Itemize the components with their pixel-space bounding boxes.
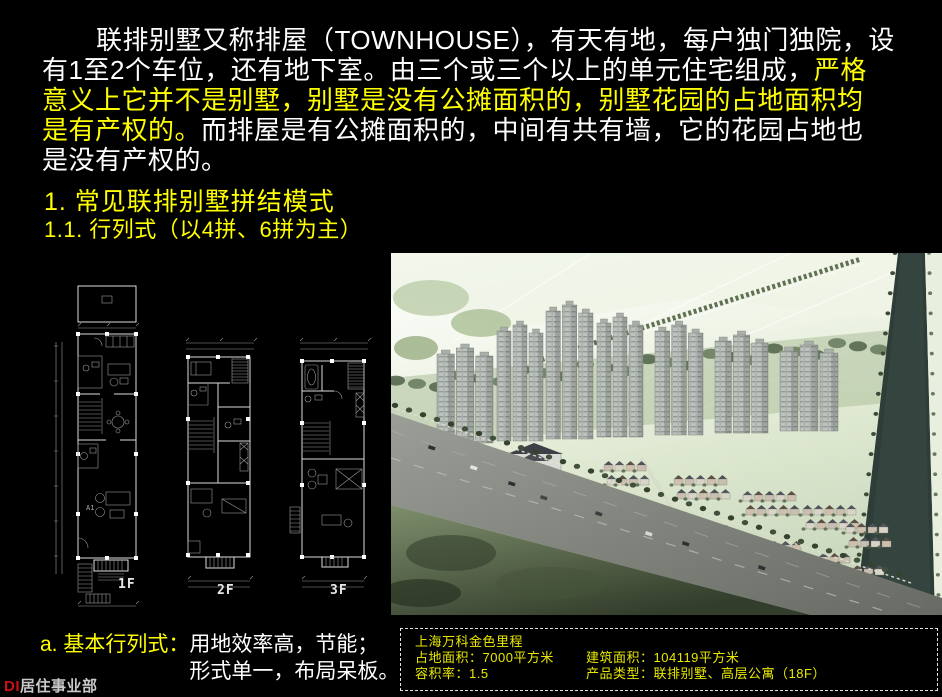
info-row: 占地面积：7000平方米 建筑面积：104119平方米 bbox=[415, 650, 937, 666]
floor-plan-2f: 2F bbox=[172, 337, 272, 603]
paragraph-highlight: 是有产权的。 bbox=[42, 115, 201, 145]
aerial-rendering-photo bbox=[391, 253, 942, 615]
floor-plan-3f-drawing bbox=[288, 337, 388, 603]
floor-plan-1f-drawing: A1 bbox=[46, 276, 170, 608]
info-row: 容积率：1.5 产品类型：联排别墅、高层公寓（18F） bbox=[415, 666, 937, 682]
floor-plan-2f-drawing bbox=[172, 337, 272, 603]
subsection-heading: 1.1. 行列式（以4拼、6拼为主） bbox=[44, 212, 362, 244]
paragraph-text: 而排屋是有公摊面积的，中间有共有墙，它的花园占地也 bbox=[201, 115, 864, 145]
intro-paragraph: 联排别墅又称排屋（TOWNHOUSE），有天有地，每户独门独院，设 有1至2个车… bbox=[42, 25, 914, 175]
project-info-box: 上海万科金色里程 占地面积：7000平方米 建筑面积：104119平方米 容积率… bbox=[400, 628, 938, 691]
info-land-area: 占地面积：7000平方米 bbox=[415, 650, 586, 666]
paragraph-line: 是有产权的。而排屋是有公摊面积的，中间有共有墙，它的花园占地也 bbox=[42, 115, 914, 145]
plan-columns bbox=[76, 332, 138, 560]
footer-brand: DI bbox=[4, 678, 20, 695]
paragraph-text: 是没有产权的。 bbox=[42, 145, 228, 175]
paragraph-highlight: 意义上它并不是别墅，别墅是没有公摊面积的，别墅花园的占地面积均 bbox=[42, 85, 864, 115]
floor-plan-3f-label: 3F bbox=[330, 583, 348, 598]
aerial-rendering-drawing bbox=[391, 253, 942, 615]
project-title: 上海万科金色里程 bbox=[415, 634, 937, 650]
note-line: 形式单一，布局呆板。 bbox=[189, 658, 399, 685]
floor-plan-1f: A1 1F bbox=[46, 276, 170, 608]
footer: DI居住事业部 bbox=[4, 675, 98, 696]
info-product-type: 产品类型：联排别墅、高层公寓（18F） bbox=[586, 666, 826, 682]
svg-text:A1: A1 bbox=[86, 504, 94, 512]
info-plot-ratio: 容积率：1.5 bbox=[415, 666, 586, 682]
floor-plan-1f-label: 1F bbox=[118, 577, 136, 592]
paragraph-line: 是没有产权的。 bbox=[42, 145, 914, 175]
paragraph-text: 联排别墅又称排屋（TOWNHOUSE），有天有地，每户独门独院，设 bbox=[96, 25, 895, 55]
paragraph-text: 有1至2个车位，还有地下室。由三个或三个以上的单元住宅组成， bbox=[42, 55, 814, 85]
paragraph-line: 意义上它并不是别墅，别墅是没有公摊面积的，别墅花园的占地面积均 bbox=[42, 85, 914, 115]
note-line: 用地效率高，节能； bbox=[189, 631, 399, 658]
floor-plan-3f: 3F bbox=[288, 337, 388, 603]
paragraph-line: 联排别墅又称排屋（TOWNHOUSE），有天有地，每户独门独院，设 bbox=[42, 25, 914, 55]
paragraph-highlight: 严格 bbox=[814, 55, 867, 85]
paragraph-line: 有1至2个车位，还有地下室。由三个或三个以上的单元住宅组成，严格 bbox=[42, 55, 914, 85]
floor-plan-2f-label: 2F bbox=[217, 583, 235, 598]
footer-department: 居住事业部 bbox=[20, 678, 98, 695]
info-building-area: 建筑面积：104119平方米 bbox=[586, 650, 739, 666]
